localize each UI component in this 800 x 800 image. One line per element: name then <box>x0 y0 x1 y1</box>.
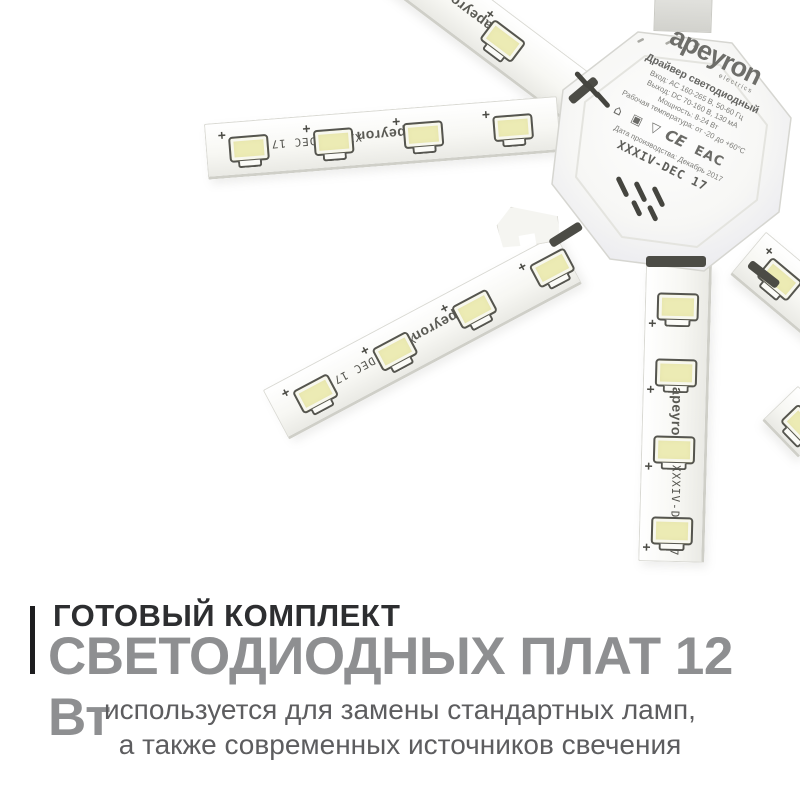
polarity-mark: + <box>647 382 655 397</box>
driver-unit: apeyron electrics Драйвер светодиодный В… <box>546 20 798 292</box>
polarity-mark: + <box>217 128 226 144</box>
polarity-mark: + <box>642 540 650 555</box>
accent-bar <box>30 606 35 674</box>
polarity-mark: + <box>515 259 529 276</box>
led-chip <box>655 358 698 387</box>
led-strip-bottom: + + apeyron + XXXIV-DEC 17 + <box>638 263 712 563</box>
led-chip <box>402 120 444 149</box>
led-chip <box>313 127 355 156</box>
product-description-line2: а также современных источников свечения <box>119 729 682 760</box>
polarity-mark: + <box>648 316 656 331</box>
led-chip <box>451 288 499 330</box>
led-chip <box>651 516 694 545</box>
polarity-mark: + <box>644 459 652 474</box>
polarity-mark: + <box>482 107 491 123</box>
led-chip <box>653 435 696 464</box>
polarity-mark: + <box>392 114 401 130</box>
product-photo-scene: apeyron + + XXXIV-DEC 17 + apeyron + + +… <box>0 0 800 800</box>
led-chip <box>657 292 700 321</box>
led-strip-lower-left: + XXXIV-DEC 17 + apeyron + + <box>263 234 582 439</box>
polarity-mark: + <box>279 385 293 402</box>
polarity-mark: + <box>302 122 311 138</box>
led-strip-lower-right-2 <box>762 386 800 458</box>
led-chip <box>492 113 534 142</box>
led-chip <box>228 134 270 163</box>
led-chip <box>780 403 800 450</box>
led-strip-left: + XXXIV-DEC 17 + apeyron + + <box>204 96 561 180</box>
product-description-line1: используется для замены стандартных ламп… <box>104 694 696 725</box>
product-description: используется для замены стандартных ламп… <box>0 692 800 762</box>
